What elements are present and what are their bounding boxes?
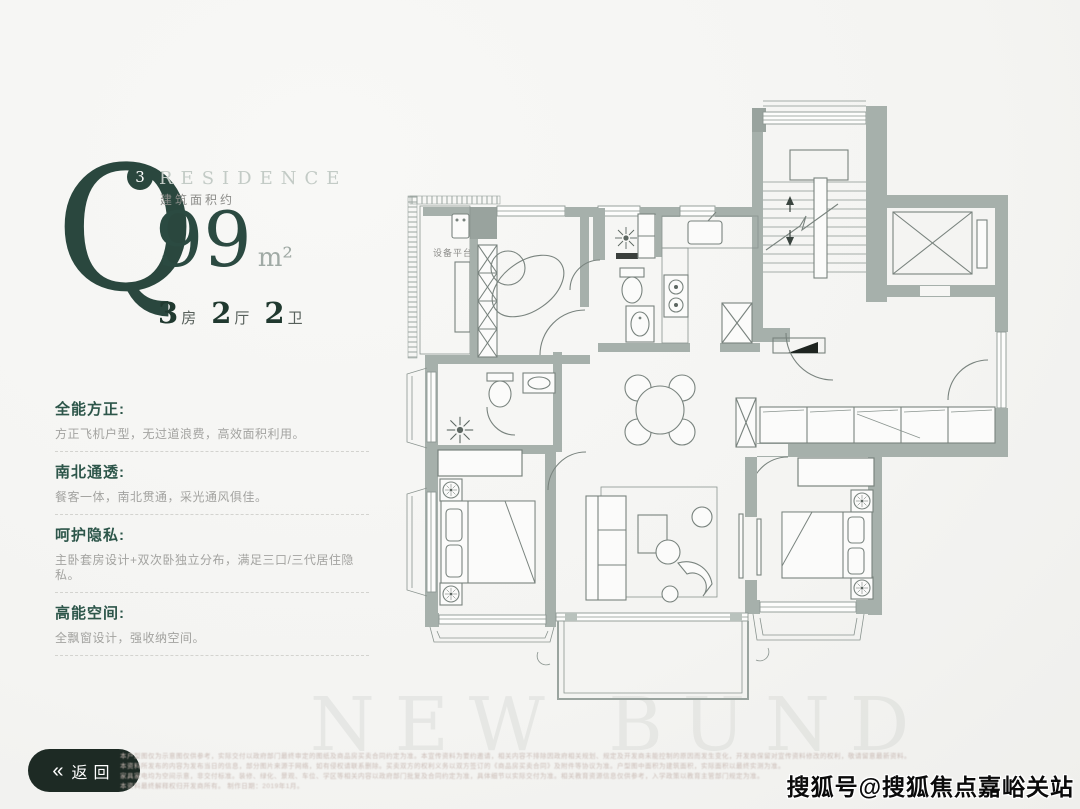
toilet	[489, 381, 511, 407]
feature-item: 全能方正: 方正飞机户型，无过道浪费，高效面积利用。	[55, 398, 369, 452]
feature-desc: 方正飞机户型，无过道浪费，高效面积利用。	[55, 427, 369, 442]
dining-table	[636, 386, 684, 434]
balcony	[537, 613, 769, 699]
area-value: 99	[155, 198, 252, 282]
armchair	[678, 562, 712, 596]
entry-door-arc	[786, 333, 833, 380]
area-unit: m²	[258, 243, 293, 273]
entry-marker	[788, 342, 818, 353]
feature-item: 高能空间: 全飘窗设计，强收纳空间。	[55, 602, 369, 656]
back-button-label: 返回	[72, 759, 116, 783]
unit-number-badge: 3	[127, 164, 153, 190]
plant	[447, 417, 473, 443]
bathroom-west	[407, 352, 562, 627]
feature-title: 呵护隐私:	[55, 524, 369, 545]
sofa	[586, 496, 626, 600]
kitchen-sink	[688, 221, 722, 244]
door-arc	[540, 310, 585, 355]
brand-text: RESIDENCE	[159, 168, 347, 189]
dining-area	[625, 375, 695, 445]
room-count-row: 3房 2厅 2卫	[158, 296, 303, 330]
platform-label: 设备平台	[433, 247, 473, 258]
sohu-watermark: 搜狐号@搜狐焦点嘉峪关站	[787, 768, 1074, 802]
elevator	[886, 195, 1008, 300]
kitchen	[662, 212, 758, 343]
wardrobe	[798, 458, 874, 486]
living-room	[586, 487, 717, 602]
feature-title: 全能方正:	[55, 398, 369, 419]
coffee-table	[656, 540, 680, 564]
feature-desc: 主卧套房设计+双次卧独立分布，满足三口/三代居住隐私。	[55, 553, 369, 583]
feature-desc: 全飘窗设计，强收纳空间。	[55, 631, 369, 646]
feature-title: 南北通透:	[55, 461, 369, 482]
feature-list: 全能方正: 方正飞机户型，无过道浪费，高效面积利用。 南北通透: 餐客一体，南北…	[55, 398, 369, 665]
page: NEW BUND Q 3 RESIDENCE 建筑面积约 99 m² 3房 2厅…	[0, 0, 1080, 809]
area-row: 99 m²	[155, 198, 293, 282]
master-bedroom	[739, 457, 882, 640]
floorplan-drawing: 设备平台	[385, 88, 1035, 713]
room-count-item: 2厅	[211, 296, 249, 330]
east-wall	[995, 300, 1008, 457]
room-count-item: 2卫	[264, 296, 302, 330]
wardrobe-column	[478, 245, 497, 357]
closet-row	[760, 407, 995, 443]
stairwell	[752, 101, 887, 342]
feature-item: 南北通透: 餐客一体，南北贯通，采光通风俱佳。	[55, 461, 369, 515]
stove	[664, 275, 688, 317]
side-table	[692, 507, 712, 527]
feature-title: 高能空间:	[55, 602, 369, 623]
wardrobe	[438, 450, 522, 476]
door-arc	[948, 360, 988, 400]
door-arc	[487, 407, 515, 435]
back-chevron-icon: «	[52, 761, 63, 781]
feature-item: 呵护隐私: 主卧套房设计+双次卧独立分布，满足三口/三代居住隐私。	[55, 524, 369, 593]
room-count-item: 3房	[158, 296, 196, 330]
feature-desc: 餐客一体，南北贯通，采光通风俱佳。	[55, 490, 369, 505]
